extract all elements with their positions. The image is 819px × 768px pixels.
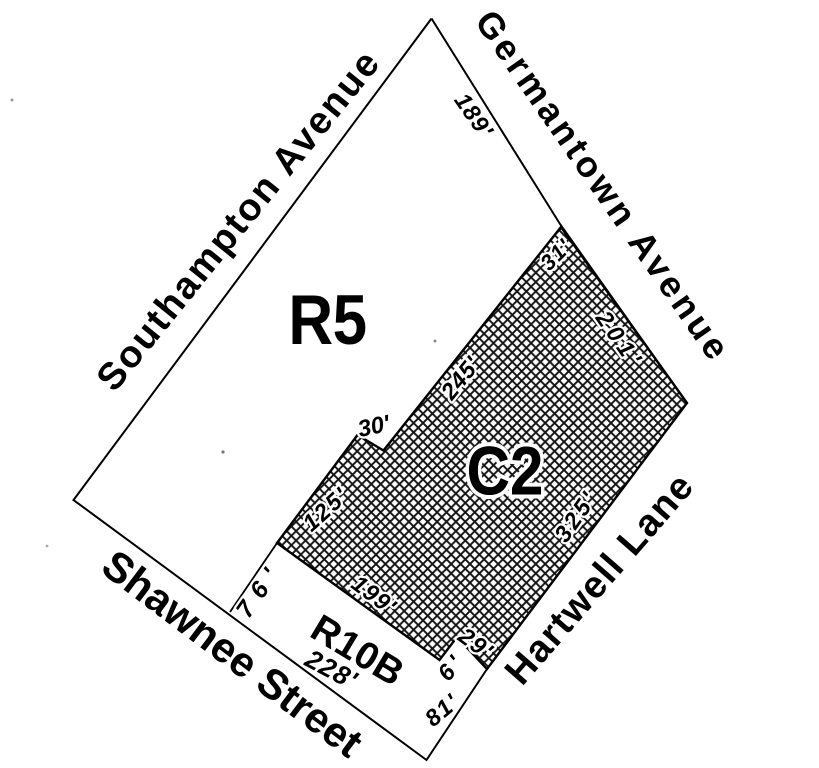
svg-text:C2: C2 (467, 432, 544, 510)
svg-text:R5: R5 (288, 282, 366, 360)
